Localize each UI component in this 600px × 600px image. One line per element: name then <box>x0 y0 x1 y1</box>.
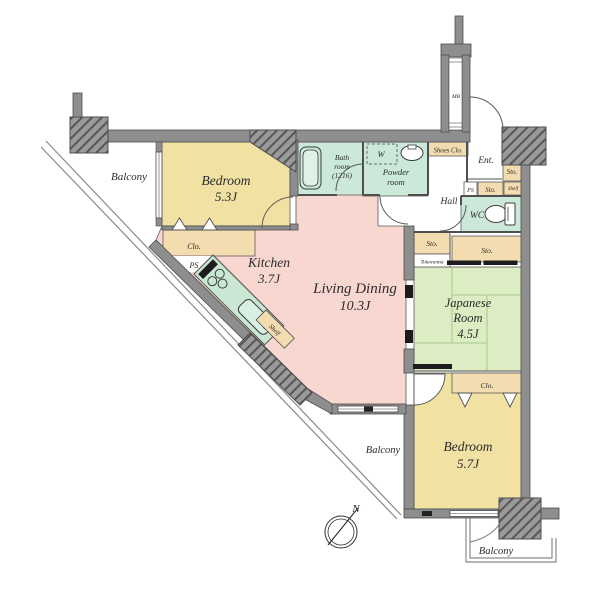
storage-c-label: Sto. <box>481 246 493 255</box>
bedroom1-size: 5.3J <box>215 189 238 204</box>
bath-label-1: Bath <box>335 153 349 162</box>
closet1-box <box>163 230 255 256</box>
kitchen-size: 3.7J <box>257 271 281 286</box>
bedroom2-label: Bedroom <box>444 439 493 454</box>
kitchen-label: Kitchen <box>247 255 290 270</box>
window-lock <box>364 407 373 412</box>
ps-label: PS <box>189 261 199 270</box>
faucet-icon <box>408 145 416 149</box>
hall-label: Hall <box>440 197 458 207</box>
powder-label-2: room <box>387 177 405 187</box>
bedroom2-size: 5.7J <box>457 456 480 471</box>
bedroom1-label: Bedroom <box>202 173 251 188</box>
pillar-top-left <box>70 117 108 153</box>
floor-plan-drawing: Shelf <box>0 0 600 600</box>
storage-a-label: Sto. <box>507 169 518 176</box>
closet1-label: Clo. <box>187 242 201 251</box>
right-wall <box>521 163 530 499</box>
center-wall <box>404 226 414 280</box>
balcony-bottom-label: Balcony <box>366 445 401 456</box>
japanese-room-size: 4.5J <box>457 327 480 341</box>
japanese-room-label-1: Japanese <box>445 296 492 310</box>
washer-label: W <box>377 149 385 159</box>
shoes-closet-label: Shoes Clo. <box>433 148 462 155</box>
bath-label-2: room <box>334 162 350 171</box>
entrance-label: Ent. <box>477 156 494 166</box>
closet2-label: Clo. <box>481 381 494 390</box>
pillar-stub <box>73 93 82 119</box>
wc-label: WC <box>470 211 485 221</box>
living-size: 10.3J <box>340 299 372 314</box>
storage-b-label: Sto. <box>485 187 496 194</box>
ps2-label: PS <box>466 188 474 194</box>
balcony-top-label: Balcony <box>111 171 147 183</box>
floor-plan-page: Shelf <box>0 0 600 600</box>
powder-label-1: Powder <box>382 167 410 177</box>
bath-label-3: (1216) <box>332 171 352 180</box>
tokonoma-label: Tokonoma <box>420 260 443 266</box>
shelf2-label: Shelf <box>508 187 519 192</box>
pillar-top-right <box>502 127 546 165</box>
japanese-room-label-2: Room <box>452 311 482 325</box>
north-label: N <box>351 503 360 515</box>
storage-d-label: Sto. <box>426 239 438 248</box>
living-label: Living Dining <box>312 281 397 297</box>
balcony-right-label: Balcony <box>479 546 514 557</box>
mb-label: MB <box>451 94 461 100</box>
pillar-bottom-right <box>499 498 541 539</box>
